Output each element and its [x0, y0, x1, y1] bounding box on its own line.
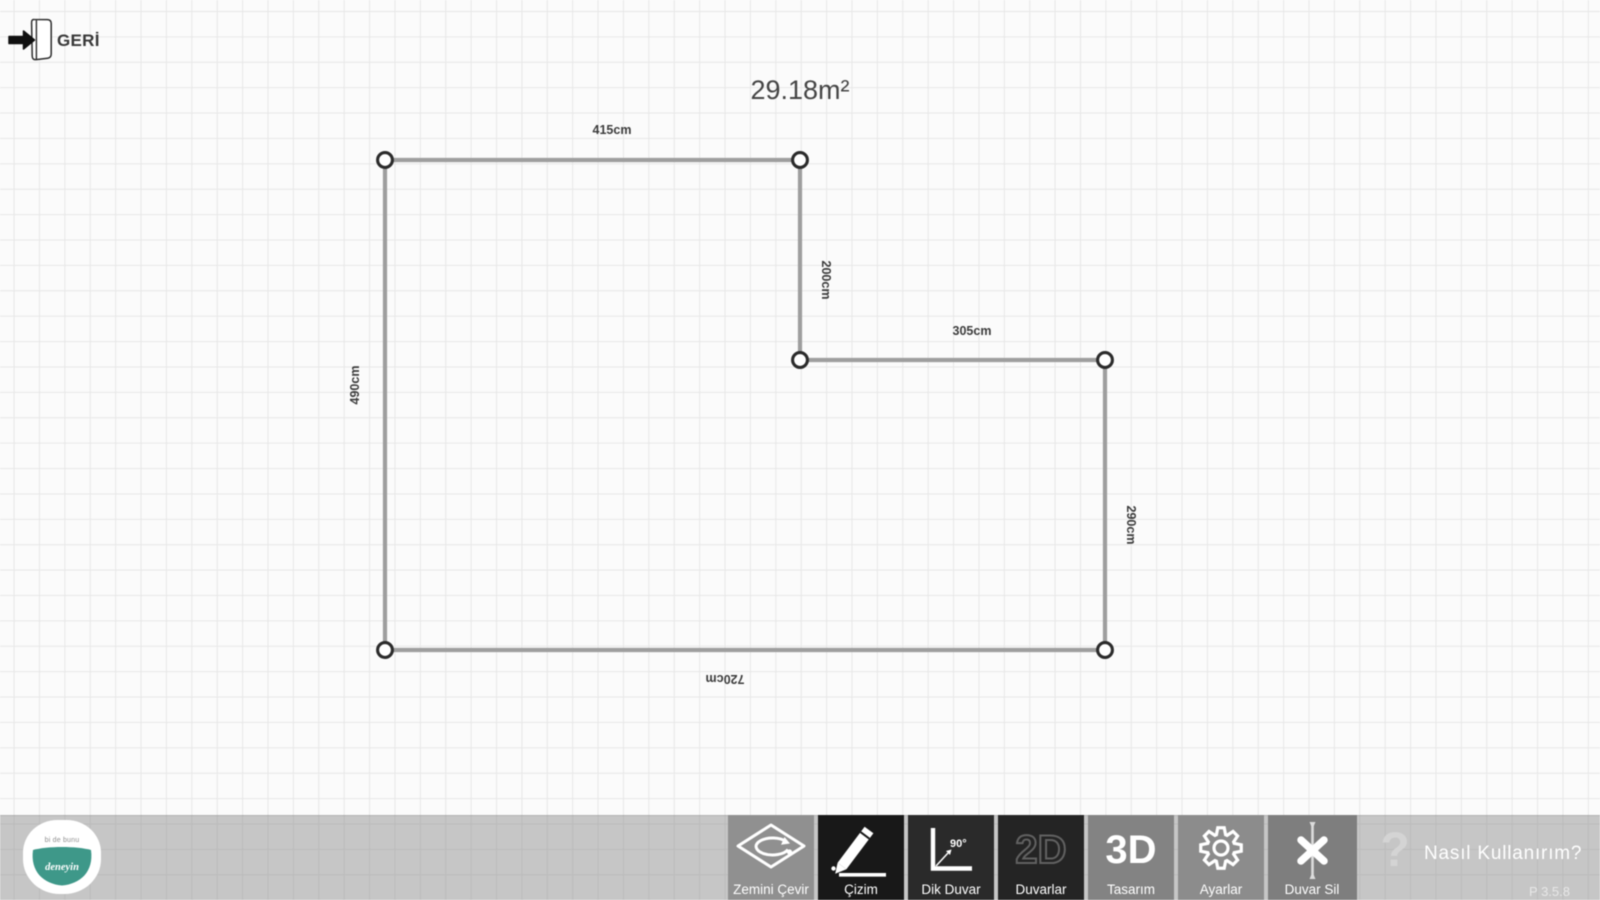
- svg-text:Duvarlar: Duvarlar: [1015, 882, 1067, 897]
- svg-text:90°: 90°: [950, 838, 967, 850]
- svg-text:Dik Duvar: Dik Duvar: [921, 882, 981, 897]
- svg-text:Zemini Çevir: Zemini Çevir: [733, 882, 809, 897]
- svg-text:Ayarlar: Ayarlar: [1200, 882, 1243, 897]
- svg-text:200cm: 200cm: [819, 261, 833, 300]
- svg-text:305cm: 305cm: [953, 324, 992, 338]
- svg-text:490cm: 490cm: [348, 366, 362, 405]
- svg-text:415cm: 415cm: [593, 123, 632, 137]
- svg-text:Çizim: Çizim: [844, 882, 878, 897]
- svg-text:Duvar Sil: Duvar Sil: [1285, 882, 1340, 897]
- svg-text:GERİ: GERİ: [57, 31, 100, 50]
- svg-text:deneyin: deneyin: [45, 862, 79, 873]
- svg-text:Tasarım: Tasarım: [1107, 882, 1155, 897]
- svg-text:3D: 3D: [1105, 828, 1156, 872]
- svg-text:720cm: 720cm: [706, 672, 745, 686]
- svg-text:290cm: 290cm: [1124, 506, 1138, 545]
- svg-text:2D: 2D: [1015, 828, 1066, 872]
